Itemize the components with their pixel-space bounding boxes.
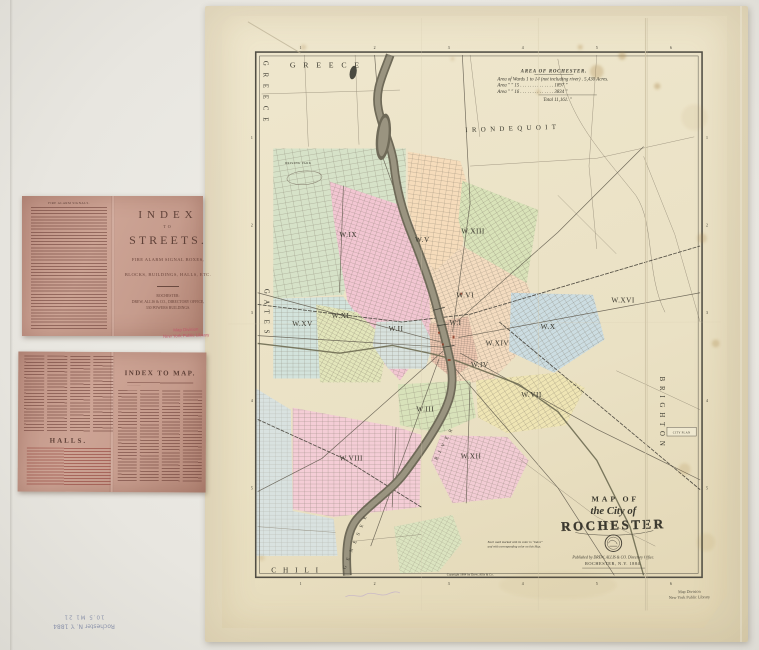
index-column	[93, 356, 113, 432]
stamp-line1: Map Division	[678, 589, 701, 594]
inscription-shelf-number: 10.5 M1 21	[28, 612, 140, 621]
cover-title-page: INDEX TO STREETS. FIRE ALARM SIGNAL BOXE…	[115, 200, 221, 334]
inscription-title-year: Rochester N. Y. 1884	[28, 621, 140, 631]
tick-label: 3	[251, 311, 253, 315]
index-column	[70, 356, 90, 432]
city-plan-label: CITY PLAN	[673, 431, 691, 435]
tick-label: 4	[522, 46, 524, 50]
title-map-of: MAP OF	[592, 494, 640, 503]
cover-subtitle-blocks: BLOCKS, BUILDINGS, HALLS, ETC.	[115, 272, 221, 277]
ward-label: W.IV	[471, 360, 489, 369]
area-table-row: Area ″ ″ 15 . . . . . . . . . . . . . . …	[496, 84, 568, 89]
pencil-annotation-squiggle	[345, 592, 400, 597]
tick-label: 3	[706, 311, 708, 315]
driving-park-label: DRIVING PARK	[285, 161, 312, 165]
index-column	[161, 390, 180, 482]
ward-color-note2: and with corresponding color on this Map…	[488, 545, 542, 549]
title-block: MAP OF the City of ROCHESTER Published b…	[561, 494, 666, 568]
area-table-row: Area of Wards 1 to 14 (not including riv…	[496, 77, 608, 82]
stamp-line2: New York Public Library	[669, 594, 711, 600]
ward-district-shapes	[256, 149, 605, 574]
tick-label: 4	[706, 399, 708, 403]
cover-rule	[157, 286, 179, 287]
imprint-address: 330 POWERS BUILDINGS.	[115, 306, 221, 312]
halls-list-lines	[26, 448, 110, 486]
index-to-map-heading: INDEX TO MAP.	[118, 369, 202, 377]
ward-label: W.I	[450, 318, 462, 327]
tick-label: 1	[706, 136, 708, 140]
tick-label: 3	[448, 582, 450, 586]
tick-label: 2	[706, 223, 708, 227]
tick-label: 1	[300, 582, 302, 586]
photo-backdrop: 1 2 3 4 5 6 1 2 3 4 5 6 1 2 3 4 5 1 2 3	[0, 0, 759, 650]
cover-imprint: ROCHESTER: DREW, ALLIS & CO., DIRECTORY …	[115, 294, 221, 312]
cover-title-streets: STREETS.	[115, 233, 221, 248]
index-column	[183, 390, 202, 482]
index-to-map-columns	[118, 390, 202, 482]
ward-label: W.XIII	[461, 226, 485, 235]
backdrop-sheet-edge	[10, 0, 13, 650]
cover-title-index: INDEX	[115, 209, 221, 221]
ward-label: W.X	[541, 322, 556, 331]
town-label-brighton: BRIGHTON	[658, 377, 665, 451]
index-column	[118, 390, 137, 482]
ward-label: W.IX	[339, 230, 357, 239]
publisher-city-line: ROCHESTER, N.Y. 1884.	[585, 561, 642, 567]
tick-label: 2	[251, 223, 253, 227]
ward-label: W.V	[415, 235, 430, 244]
halls-heading: HALLS.	[24, 437, 113, 445]
ward-label: W.VII	[521, 390, 542, 399]
town-label-chili: CHILI	[271, 565, 325, 574]
index-to-map-page: INDEX TO MAP.	[118, 356, 203, 488]
fire-alarm-list-header: FIRE ALARM SIGNALS.	[29, 201, 109, 205]
tick-label: 5	[706, 487, 708, 491]
index-column	[47, 356, 67, 432]
area-table-row: Area ″ ″ 16 . . . . . . . . . . . . . . …	[496, 90, 568, 95]
library-stamp-cover: Map Division New York Public Library	[151, 325, 221, 339]
ward-label: W.II	[389, 324, 404, 333]
street-index-page: HALLS.	[24, 356, 114, 488]
cover-subtitle-fire-alarm: FIRE ALARM SIGNAL BOXES,	[115, 257, 221, 262]
tick-label: 6	[670, 582, 672, 586]
index-column	[139, 390, 158, 482]
ward-label: W.XII	[461, 451, 482, 460]
town-label-greece: GREECE	[290, 61, 367, 70]
tick-label: 4	[251, 399, 253, 403]
area-table-total: Total 11,161. ″	[543, 98, 572, 103]
tick-label: 5	[251, 487, 253, 491]
index-to-map-spread: HALLS. INDEX TO MAP.	[18, 352, 207, 493]
tick-label: 2	[374, 46, 376, 50]
tick-label: 3	[448, 46, 450, 50]
index-note-line	[127, 382, 193, 385]
ward-label: W.XVI	[611, 296, 635, 305]
rochester-map: 1 2 3 4 5 6 1 2 3 4 5 6 1 2 3 4 5 1 2 3	[222, 16, 727, 628]
catalog-inscription: Rochester N. Y. 1884 10.5 M1 21	[28, 612, 140, 630]
fire-alarm-list-page: FIRE ALARM SIGNALS.	[29, 201, 109, 331]
area-table-title: AREA OF ROCHESTER.	[520, 70, 587, 75]
town-label-irondequoit: IRONDEQUOIT	[465, 124, 560, 134]
ward-label: W.VI	[456, 291, 474, 300]
city-seal-icon	[605, 535, 622, 552]
index-column	[24, 356, 44, 432]
ward-label: W.VIII	[339, 453, 363, 462]
street-index-columns	[24, 356, 113, 432]
map-sheet: 1 2 3 4 5 6 1 2 3 4 5 6 1 2 3 4 5 1 2 3	[222, 16, 727, 628]
publisher-line: Published by DREW, ALLIS & CO. Directory…	[571, 555, 654, 560]
tick-label: 2	[374, 582, 376, 586]
index-booklet-cover: FIRE ALARM SIGNALS. INDEX TO STREETS. FI…	[22, 196, 203, 336]
cover-title-to: TO	[115, 224, 221, 229]
ward-color-note: Each ward marked with its color in “Inde…	[487, 539, 543, 544]
ward-label: W.XI	[332, 311, 350, 320]
fire-alarm-list-lines	[31, 207, 107, 331]
tick-label: 6	[670, 46, 672, 50]
town-label-gates: GATES	[262, 289, 269, 339]
title-the-city-of: the City of	[590, 505, 637, 517]
tick-label: 5	[596, 46, 598, 50]
ward-label: W.III	[416, 405, 434, 414]
tick-label: 1	[251, 136, 253, 140]
library-stamp-bottom: Map Division New York Public Library	[669, 589, 711, 600]
town-label-greece-side: GREECE	[262, 61, 269, 128]
ward-label: W.XIV	[486, 338, 510, 347]
